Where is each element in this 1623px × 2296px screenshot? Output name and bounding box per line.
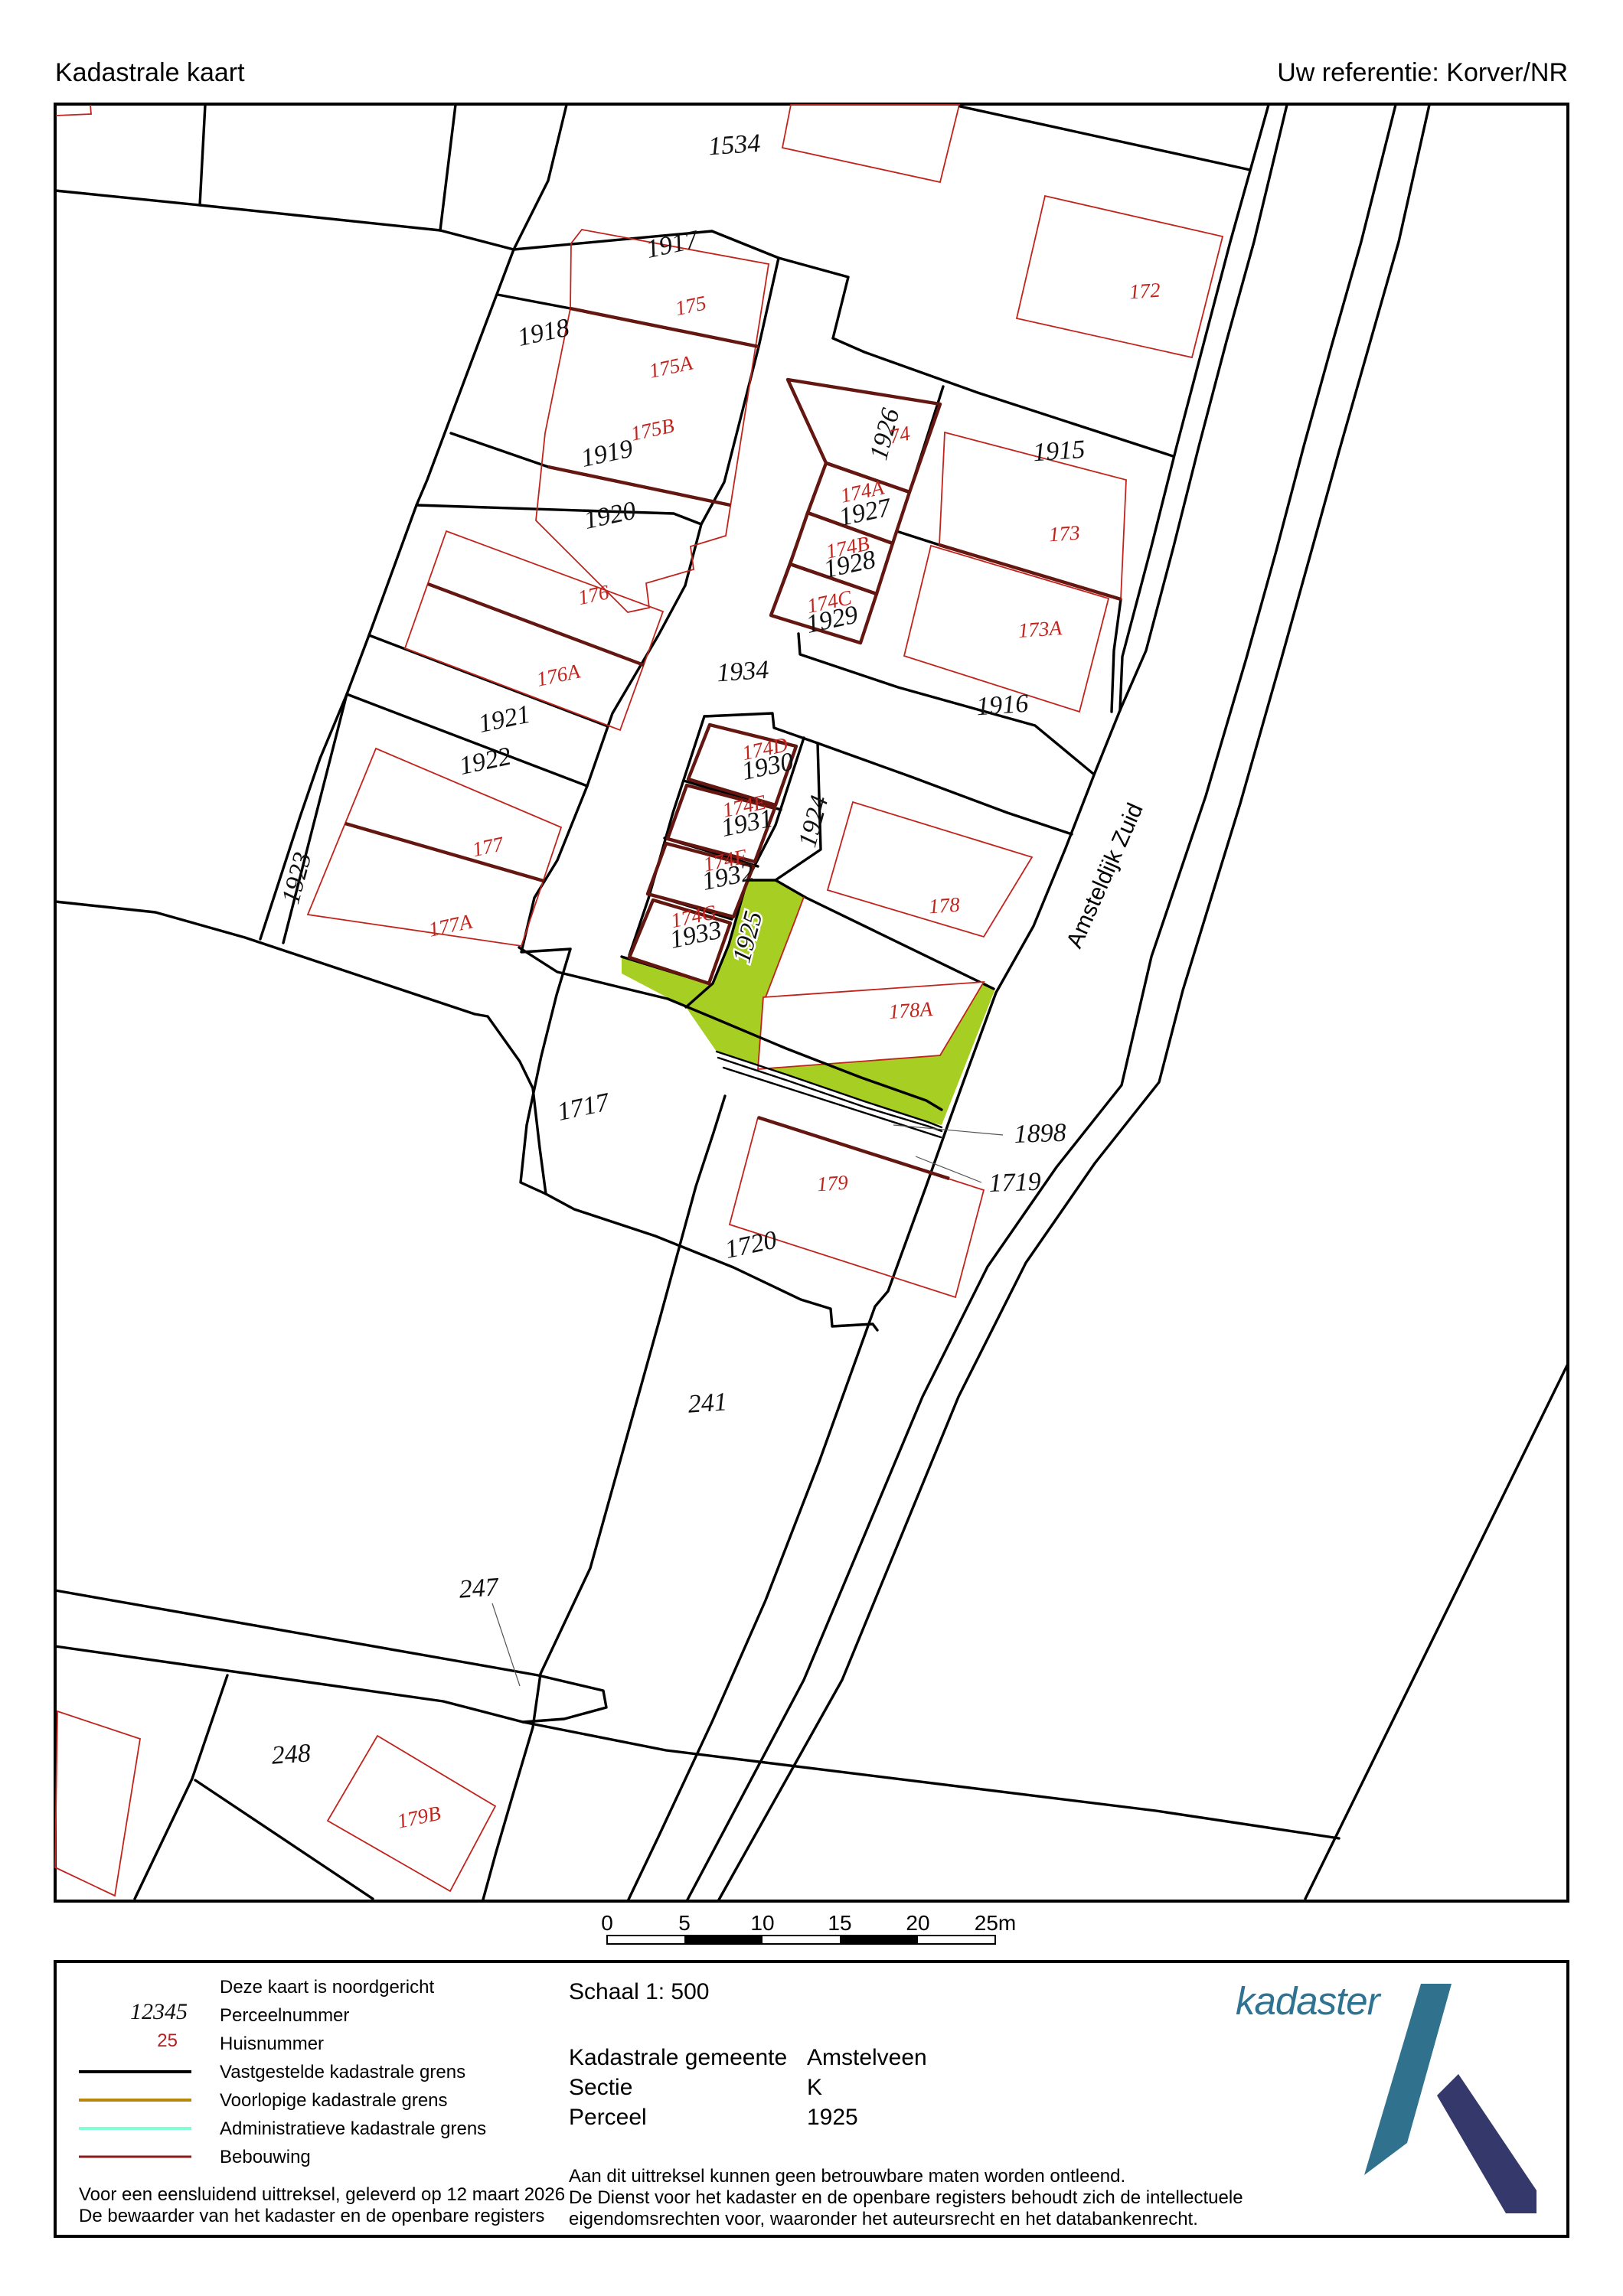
svg-text:Perceel: Perceel [569,2105,647,2130]
svg-text:25m: 25m [975,1911,1016,1935]
svg-text:1534: 1534 [707,129,761,161]
svg-text:Amstelveen: Amstelveen [807,2045,927,2070]
svg-text:eigendomsrechten voor, waarond: eigendomsrechten voor, waaronder het aut… [569,2209,1198,2229]
svg-text:K: K [807,2075,822,2100]
svg-text:1719: 1719 [988,1168,1041,1198]
svg-text:12345: 12345 [130,1999,188,2024]
svg-text:Kadastrale kaart: Kadastrale kaart [55,58,245,87]
svg-text:247: 247 [459,1573,501,1604]
svg-text:173A: 173A [1017,616,1063,642]
svg-text:Uw referentie: Korver/NR: Uw referentie: Korver/NR [1277,58,1568,87]
svg-text:178: 178 [928,893,961,918]
svg-text:De Dienst voor het kadaster en: De Dienst voor het kadaster en de openba… [569,2187,1243,2208]
svg-text:Kadastrale gemeente: Kadastrale gemeente [569,2045,787,2070]
svg-text:1925: 1925 [807,2105,858,2130]
svg-text:Deze kaart is noordgericht: Deze kaart is noordgericht [220,1977,434,1998]
svg-text:1915: 1915 [1032,435,1086,468]
svg-text:Voor een eensluidend uittrekse: Voor een eensluidend uittreksel, gelever… [79,2184,565,2205]
svg-text:Vastgestelde kadastrale grens: Vastgestelde kadastrale grens [220,2062,465,2082]
svg-text:kadaster: kadaster [1236,1979,1382,2023]
svg-text:1934: 1934 [716,656,769,688]
svg-text:Voorlopige kadastrale grens: Voorlopige kadastrale grens [220,2090,448,2111]
svg-text:25: 25 [157,2030,178,2051]
svg-text:172: 172 [1128,279,1161,304]
svg-text:De bewaarder van het kadaster: De bewaarder van het kadaster en de open… [79,2206,544,2226]
svg-text:173: 173 [1048,521,1080,546]
svg-text:0: 0 [601,1911,613,1935]
svg-text:Bebouwing: Bebouwing [220,2147,311,2167]
svg-text:Aan dit uittreksel kunnen geen: Aan dit uittreksel kunnen geen betrouwba… [569,2166,1125,2187]
svg-text:241: 241 [687,1388,728,1418]
svg-text:Sectie: Sectie [569,2075,632,2100]
svg-text:248: 248 [271,1739,312,1769]
svg-text:Perceelnummer: Perceelnummer [220,2005,349,2026]
svg-text:1898: 1898 [1014,1119,1066,1149]
svg-text:5: 5 [678,1911,691,1935]
svg-text:1916: 1916 [975,690,1029,722]
svg-text:178A: 178A [888,997,933,1023]
svg-text:15: 15 [828,1911,851,1935]
svg-text:10: 10 [750,1911,774,1935]
svg-text:Administratieve kadastrale gre: Administratieve kadastrale grens [220,2118,486,2139]
svg-text:20: 20 [906,1911,929,1935]
svg-text:Schaal 1: 500: Schaal 1: 500 [569,1979,709,2004]
svg-text:179: 179 [816,1171,849,1196]
svg-text:Huisnummer: Huisnummer [220,2033,324,2054]
